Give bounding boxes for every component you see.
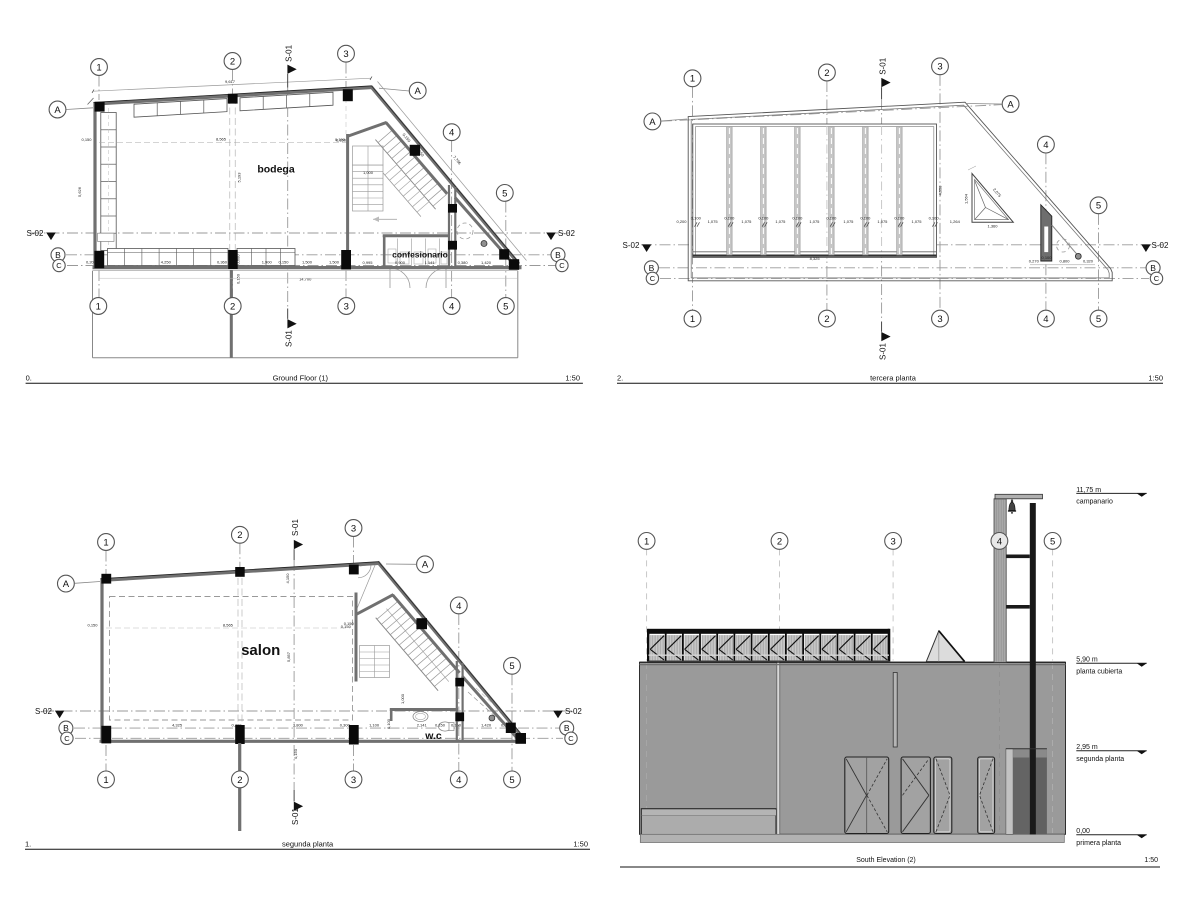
svg-text:5,90 m: 5,90 m — [1076, 657, 1098, 664]
svg-text:0,100: 0,100 — [826, 216, 837, 221]
svg-text:0,150: 0,150 — [435, 723, 446, 728]
svg-text:0,100: 0,100 — [860, 216, 871, 221]
svg-text:5: 5 — [509, 661, 514, 672]
svg-text:4: 4 — [456, 775, 461, 786]
svg-text:0,900: 0,900 — [395, 260, 406, 265]
svg-text:2,141: 2,141 — [417, 723, 428, 728]
svg-text:11,75 m: 11,75 m — [1076, 487, 1101, 494]
svg-text:1,420: 1,420 — [481, 260, 492, 265]
svg-text:1: 1 — [96, 62, 101, 73]
svg-text:A: A — [649, 117, 656, 128]
svg-text:5: 5 — [1050, 536, 1055, 547]
svg-text:5: 5 — [509, 775, 514, 786]
svg-text:1,075: 1,075 — [877, 219, 888, 224]
svg-text:4,325: 4,325 — [172, 723, 183, 728]
svg-text:0,800: 0,800 — [1059, 259, 1070, 264]
svg-text:campanario: campanario — [1076, 499, 1113, 506]
svg-text:confesionario: confesionario — [392, 250, 448, 260]
svg-text:1:50: 1:50 — [1144, 857, 1158, 864]
svg-text:primera planta: primera planta — [1076, 840, 1121, 847]
svg-text:South Elevation (2): South Elevation (2) — [856, 857, 916, 864]
svg-text:S-02: S-02 — [558, 229, 575, 238]
svg-text:5,626: 5,626 — [77, 186, 82, 197]
svg-text:3: 3 — [937, 62, 942, 73]
svg-text:2: 2 — [237, 530, 242, 541]
svg-text:1,075: 1,075 — [843, 219, 854, 224]
svg-text:3: 3 — [351, 775, 356, 786]
svg-text:A: A — [415, 86, 422, 97]
svg-text:B: B — [649, 263, 655, 273]
svg-text:8,565: 8,565 — [216, 137, 227, 142]
svg-text:1,564: 1,564 — [964, 193, 969, 204]
svg-text:C: C — [650, 274, 656, 283]
svg-text:0.: 0. — [26, 373, 32, 382]
svg-text:3: 3 — [890, 536, 895, 547]
svg-text:B: B — [1150, 263, 1156, 273]
svg-text:S-01: S-01 — [879, 57, 888, 74]
svg-text:1,500: 1,500 — [329, 259, 340, 264]
svg-text:0,150: 0,150 — [81, 137, 92, 142]
svg-text:1,900: 1,900 — [262, 259, 273, 264]
svg-text:4: 4 — [456, 601, 461, 612]
svg-text:0,150: 0,150 — [278, 259, 289, 264]
svg-text:3: 3 — [937, 314, 942, 325]
svg-text:0,00: 0,00 — [1076, 828, 1090, 835]
svg-text:0,150: 0,150 — [87, 623, 98, 628]
svg-text:0,100: 0,100 — [758, 216, 769, 221]
svg-text:1.: 1. — [25, 839, 31, 848]
svg-text:5,857: 5,857 — [286, 651, 291, 662]
svg-text:S-02: S-02 — [565, 707, 582, 716]
svg-text:5: 5 — [1096, 201, 1101, 212]
svg-text:0,100: 0,100 — [724, 216, 735, 221]
svg-text:2: 2 — [230, 301, 235, 312]
svg-text:2.: 2. — [617, 373, 623, 382]
svg-text:1: 1 — [690, 74, 695, 85]
svg-text:0,150: 0,150 — [336, 138, 347, 143]
svg-text:C: C — [559, 261, 565, 270]
svg-text:0,150: 0,150 — [341, 624, 352, 629]
svg-text:S-01: S-01 — [291, 519, 300, 536]
svg-text:salon: salon — [241, 642, 280, 659]
svg-text:B: B — [55, 250, 61, 260]
svg-text:S-01: S-01 — [285, 44, 294, 61]
svg-text:tercera planta: tercera planta — [870, 373, 917, 382]
svg-text:1,500: 1,500 — [302, 259, 313, 264]
svg-text:A: A — [422, 560, 429, 571]
svg-text:A: A — [54, 105, 61, 116]
svg-text:C: C — [64, 734, 70, 743]
svg-text:S-02: S-02 — [1152, 241, 1169, 250]
svg-text:3: 3 — [344, 301, 349, 312]
svg-text:0,380: 0,380 — [458, 260, 469, 265]
svg-text:0,360: 0,360 — [217, 259, 228, 264]
svg-text:1,075: 1,075 — [741, 219, 752, 224]
svg-text:C: C — [1154, 274, 1160, 283]
svg-text:S-02: S-02 — [35, 707, 52, 716]
svg-text:1: 1 — [690, 314, 695, 325]
svg-text:5: 5 — [1096, 314, 1101, 325]
svg-text:1,075: 1,075 — [775, 219, 786, 224]
svg-text:5: 5 — [503, 301, 508, 312]
svg-text:bodega: bodega — [257, 164, 294, 176]
svg-text:4: 4 — [1043, 140, 1048, 151]
svg-text:Ground Floor (1): Ground Floor (1) — [273, 373, 329, 382]
svg-text:1,100: 1,100 — [369, 723, 380, 728]
svg-text:planta cubierta: planta cubierta — [1076, 668, 1122, 675]
svg-text:A: A — [63, 579, 70, 590]
svg-text:4: 4 — [449, 128, 454, 139]
svg-text:B: B — [564, 723, 570, 733]
svg-text:0,100: 0,100 — [792, 216, 803, 221]
svg-text:9,617: 9,617 — [225, 79, 236, 84]
svg-text:C: C — [56, 261, 62, 270]
svg-text:1: 1 — [103, 775, 108, 786]
svg-text:4: 4 — [997, 536, 1002, 547]
svg-text:1: 1 — [103, 537, 108, 548]
svg-text:2: 2 — [230, 56, 235, 67]
svg-text:4: 4 — [1043, 314, 1048, 325]
svg-text:1,075: 1,075 — [708, 219, 719, 224]
svg-text:1,000: 1,000 — [363, 170, 374, 175]
svg-text:3: 3 — [351, 523, 356, 534]
svg-text:2: 2 — [824, 68, 829, 79]
svg-text:4: 4 — [449, 301, 454, 312]
svg-text:S-01: S-01 — [879, 343, 888, 360]
svg-text:4,558: 4,558 — [938, 185, 943, 196]
svg-text:2: 2 — [824, 314, 829, 325]
svg-text:0,995: 0,995 — [362, 260, 373, 265]
svg-text:S-02: S-02 — [623, 241, 640, 250]
svg-text:segunda planta: segunda planta — [282, 839, 334, 848]
svg-text:3,800: 3,800 — [293, 723, 304, 728]
svg-text:S-02: S-02 — [27, 229, 44, 238]
svg-text:1:50: 1:50 — [573, 839, 588, 848]
svg-text:1: 1 — [644, 536, 649, 547]
svg-text:0,270: 0,270 — [1029, 259, 1040, 264]
svg-text:2: 2 — [237, 775, 242, 786]
svg-text:8,325: 8,325 — [810, 256, 821, 261]
svg-text:2,95 m: 2,95 m — [1076, 744, 1098, 751]
svg-text:1,000: 1,000 — [400, 693, 405, 704]
svg-text:4,250: 4,250 — [161, 259, 172, 264]
svg-text:1:50: 1:50 — [1148, 373, 1163, 382]
svg-text:1,420: 1,420 — [481, 723, 492, 728]
svg-text:1,264: 1,264 — [950, 219, 961, 224]
svg-text:B: B — [555, 250, 561, 260]
svg-text:1,141: 1,141 — [425, 260, 436, 265]
svg-text:0,100: 0,100 — [894, 216, 905, 221]
svg-text:14,700: 14,700 — [299, 277, 312, 282]
svg-text:1:50: 1:50 — [565, 373, 580, 382]
svg-text:C: C — [568, 734, 574, 743]
svg-text:0,100: 0,100 — [929, 216, 940, 221]
svg-text:1,360: 1,360 — [987, 224, 998, 229]
svg-text:A: A — [1007, 99, 1014, 110]
svg-text:segunda planta: segunda planta — [1076, 756, 1124, 763]
svg-text:0,320: 0,320 — [1083, 259, 1094, 264]
svg-text:0,150: 0,150 — [236, 273, 241, 284]
svg-text:2: 2 — [777, 536, 782, 547]
svg-text:4,150: 4,150 — [285, 573, 290, 584]
svg-text:S-01: S-01 — [291, 808, 300, 825]
svg-text:1,075: 1,075 — [911, 219, 922, 224]
svg-text:5: 5 — [502, 188, 507, 199]
svg-text:1,075: 1,075 — [809, 219, 820, 224]
svg-text:S-01: S-01 — [285, 330, 294, 347]
svg-text:0,150: 0,150 — [293, 748, 298, 759]
svg-text:0,100: 0,100 — [1041, 255, 1052, 260]
svg-text:0,200: 0,200 — [676, 219, 687, 224]
svg-text:5,193: 5,193 — [237, 172, 242, 183]
svg-text:3: 3 — [343, 49, 348, 60]
svg-text:8,565: 8,565 — [223, 623, 234, 628]
svg-text:1: 1 — [96, 301, 101, 312]
svg-text:0,100: 0,100 — [691, 216, 702, 221]
